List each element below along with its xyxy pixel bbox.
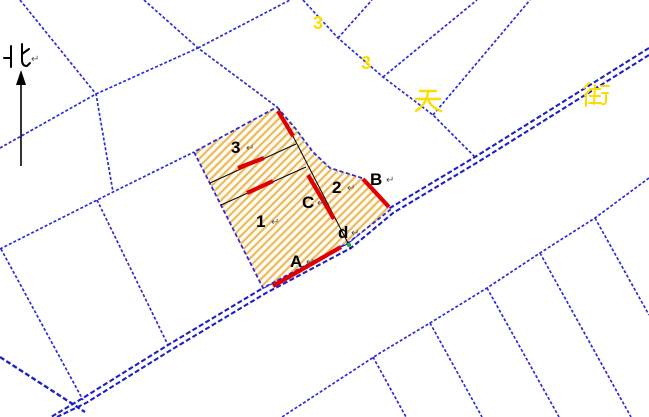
paragraph-mark: ↵ — [306, 257, 314, 268]
parcel-line — [20, 0, 113, 192]
parcel-line — [373, 357, 406, 417]
parcel-line — [97, 200, 168, 345]
region-label-2: 2 — [332, 178, 341, 197]
street-name-labels: 3 3 — [313, 13, 609, 111]
north-label-glyph — [4, 44, 30, 67]
region-label-1: 1 — [256, 212, 265, 231]
parcel-line — [540, 253, 631, 417]
point-d-marker — [347, 243, 351, 247]
paragraph-mark: ↵ — [246, 143, 254, 154]
cadastral-map: 3 ↵ 1 ↵ 2 ↵ C ↵ B ↵ d ↵ A ↵ ↵ 3 3 — [0, 0, 649, 417]
paragraph-mark: ↵ — [317, 198, 325, 209]
north-arrow-icon — [16, 70, 26, 166]
parcel-line — [430, 323, 482, 417]
region-label-3: 3 — [231, 138, 240, 157]
parcel-line — [338, 0, 372, 38]
point-label-a: A — [290, 252, 302, 271]
corner-boundary-line — [0, 357, 85, 412]
paragraph-mark: ↵ — [347, 183, 355, 194]
parcel-line — [198, 0, 290, 48]
paragraph-mark: ↵ — [31, 54, 39, 65]
paragraph-mark: ↵ — [386, 175, 394, 186]
parcel-line — [144, 0, 277, 107]
street-glyph-1: 3 — [313, 13, 323, 33]
street-glyph-2: 3 — [361, 53, 371, 73]
parcel-line — [595, 218, 649, 315]
parcel-line — [433, 0, 530, 115]
parcel-line — [1, 249, 83, 400]
north-indicator: ↵ — [4, 44, 39, 166]
street-glyph-tian — [416, 91, 441, 111]
parcel-line — [383, 0, 477, 77]
point-label-c: C — [302, 193, 314, 212]
parcel-line — [487, 288, 559, 417]
paragraph-mark: ↵ — [271, 217, 279, 228]
paragraph-mark: ↵ — [351, 228, 359, 239]
point-label-b: B — [370, 170, 382, 189]
point-label-d: d — [338, 223, 348, 242]
